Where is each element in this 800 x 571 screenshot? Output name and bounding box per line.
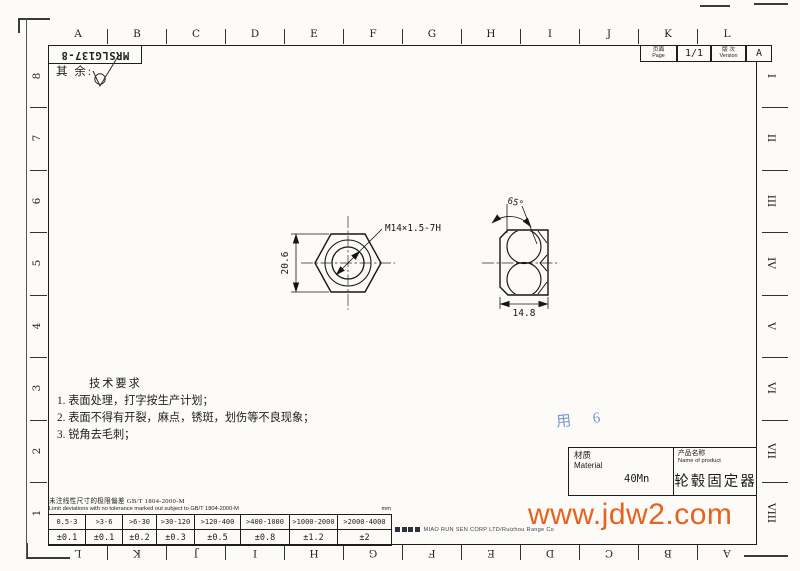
- tolerance-table: 0.5-3 >3-6 >6-30 >30-120 >120-400 >400-1…: [48, 514, 392, 546]
- tolerance-range: >400-1000: [241, 515, 290, 530]
- tech-requirement-item: 1. 表面处理，打字按生产计划；: [57, 393, 314, 410]
- dimension-chamfer-angle: 65°: [506, 196, 524, 210]
- side-view: 65° 14.8: [482, 196, 557, 319]
- tolerance-range: >120-400: [195, 515, 241, 530]
- tolerance-range: >1000-2000: [290, 515, 338, 530]
- tolerance-title-cn: 未注线性尺寸的极限偏差 GB/T 1804-2000-M: [49, 499, 391, 506]
- tolerance-title-en: Limit deviations with no tolerance marke…: [49, 506, 391, 512]
- tolerance-value: ±2: [338, 530, 391, 545]
- tolerance-value: ±0.3: [157, 530, 195, 545]
- front-view: 20.6 M14×1.5-7H: [280, 216, 441, 310]
- material-label-en: Material: [574, 461, 602, 470]
- tolerance-range: >2000-4000: [338, 515, 391, 530]
- thread-callout: M14×1.5-7H: [385, 223, 441, 234]
- tolerance-value: ±0.8: [241, 530, 290, 545]
- tolerance-value: ±0.1: [49, 530, 86, 545]
- tolerance-value: ±0.1: [86, 530, 123, 545]
- tech-requirement-item: 2. 表面不得有开裂，麻点，锈斑，划伤等不良现象；: [57, 410, 314, 427]
- tolerance-value: ±1.2: [290, 530, 338, 545]
- material-label: 材质 Material: [574, 451, 602, 470]
- dimension-across-flats: 20.6: [280, 251, 291, 274]
- tolerance-unit: mm: [382, 506, 391, 512]
- tolerance-value-row: ±0.1 ±0.1 ±0.2 ±0.3 ±0.5 ±0.8 ±1.2 ±2: [49, 530, 391, 545]
- material-label-cn: 材质: [574, 451, 602, 461]
- product-label: 产品名称 Name of product: [678, 450, 721, 465]
- material-block: 材质 Material 40Mn 产品名称 Name of product 轮毂…: [568, 447, 757, 496]
- material-value: 40Mn: [624, 473, 649, 485]
- tech-requirements: 技术要求 1. 表面处理，打字按生产计划； 2. 表面不得有开裂，麻点，锈斑，划…: [57, 376, 314, 444]
- company-logo-blocks: [395, 527, 420, 533]
- product-label-cn: 产品名称: [678, 450, 721, 458]
- product-label-en: Name of product: [678, 458, 721, 465]
- tolerance-value: ±0.2: [123, 530, 157, 545]
- tolerance-value: ±0.5: [195, 530, 241, 545]
- dimension-width: 14.8: [513, 308, 536, 319]
- tolerance-range: >30-120: [157, 515, 195, 530]
- tolerance-table-header: 未注线性尺寸的极限偏差 GB/T 1804-2000-M Limit devia…: [49, 499, 391, 512]
- product-name: 轮毂固定器: [673, 470, 758, 491]
- tech-requirements-title: 技术要求: [57, 376, 314, 393]
- drawing-sheet: A B C D E F G H I J K L L K J I H G F E …: [0, 0, 800, 571]
- tolerance-range-row: 0.5-3 >3-6 >6-30 >30-120 >120-400 >400-1…: [49, 515, 391, 530]
- watermark: www.jdw2.com: [528, 498, 732, 532]
- tolerance-range: >6-30: [123, 515, 157, 530]
- tolerance-range: 0.5-3: [49, 515, 86, 530]
- tech-requirement-item: 3. 锐角去毛刺；: [57, 427, 314, 444]
- surface-finish-icon: [93, 58, 117, 86]
- tolerance-range: >3-6: [86, 515, 123, 530]
